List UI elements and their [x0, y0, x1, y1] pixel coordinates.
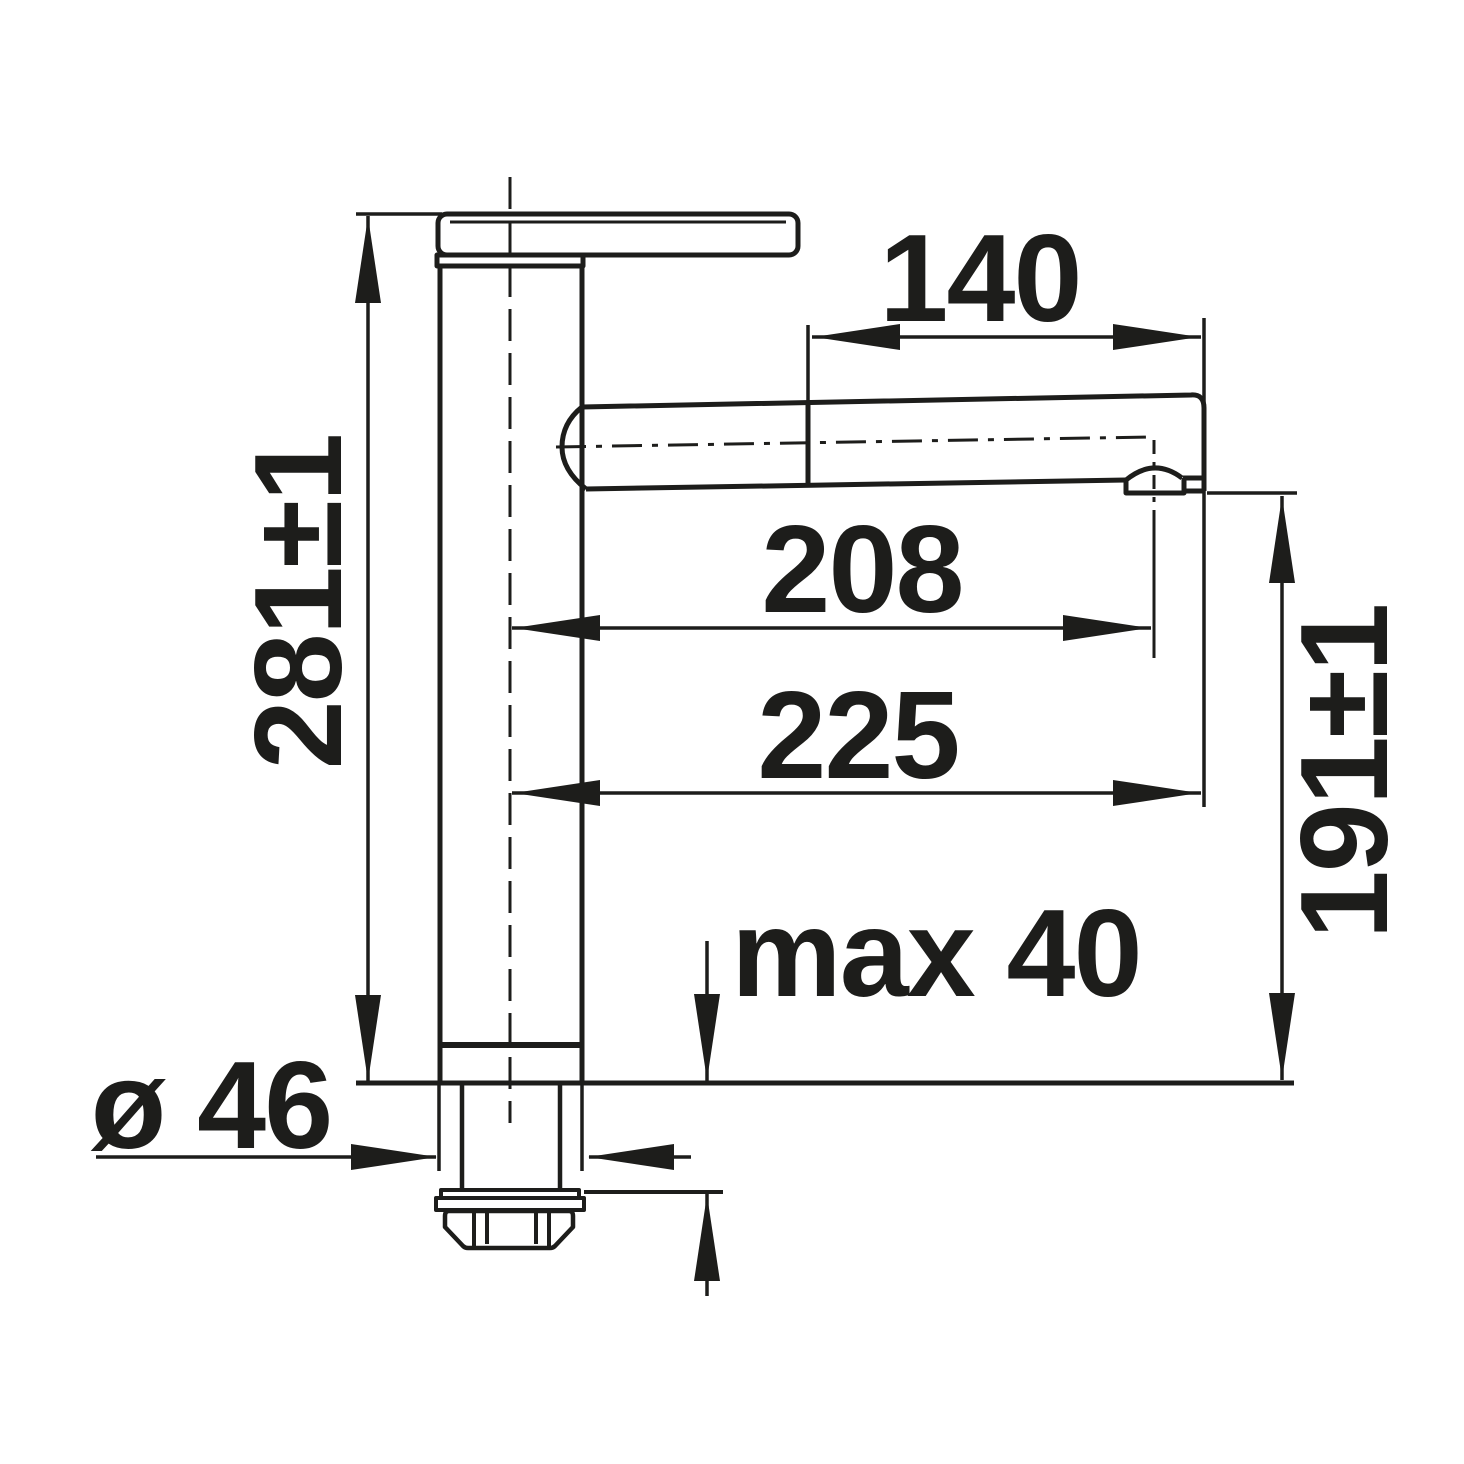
faucet-dimension-drawing: 140 208 225 281±1 191±1 max 40 ø 46 — [0, 0, 1464, 1464]
faucet-collar — [437, 255, 583, 266]
spout-centerline — [556, 437, 1150, 447]
spout-top-edge — [582, 395, 1204, 491]
mounting-shank — [462, 1085, 560, 1190]
arrow-up-icon — [694, 1195, 720, 1281]
arrow-up-icon — [1269, 497, 1295, 583]
dim-label-281: 281±1 — [230, 435, 368, 770]
arrow-left-icon — [588, 1144, 674, 1170]
dim-label-225: 225 — [757, 667, 958, 805]
dimension-labels-group: 140 208 225 281±1 191±1 max 40 ø 46 — [91, 210, 1414, 1175]
dim-label-208: 208 — [761, 501, 962, 639]
faucet-handle-lever — [438, 214, 798, 255]
spout-underside — [586, 480, 1126, 489]
arrow-left-icon — [514, 780, 600, 806]
arrow-down-icon — [694, 994, 720, 1080]
arrow-left-icon — [514, 615, 600, 641]
mounting-washer — [436, 1198, 584, 1210]
technical-drawing-canvas: 140 208 225 281±1 191±1 max 40 ø 46 — [0, 0, 1464, 1464]
dim-label-191: 191±1 — [1276, 605, 1414, 940]
arrow-right-icon — [1113, 324, 1199, 350]
dim-label-max40: max 40 — [731, 885, 1140, 1023]
arrow-right-icon — [1063, 615, 1149, 641]
arrow-right-icon — [351, 1144, 437, 1170]
arrow-right-icon — [1113, 780, 1199, 806]
arrow-down-icon — [1269, 993, 1295, 1079]
hex-nut-facets — [474, 1212, 549, 1246]
dim-label-140: 140 — [879, 210, 1080, 348]
dim-label-dia46: ø 46 — [91, 1037, 332, 1175]
mounting-hex-nut — [445, 1211, 573, 1248]
arrow-down-icon — [355, 995, 381, 1081]
arrow-up-icon — [355, 217, 381, 303]
